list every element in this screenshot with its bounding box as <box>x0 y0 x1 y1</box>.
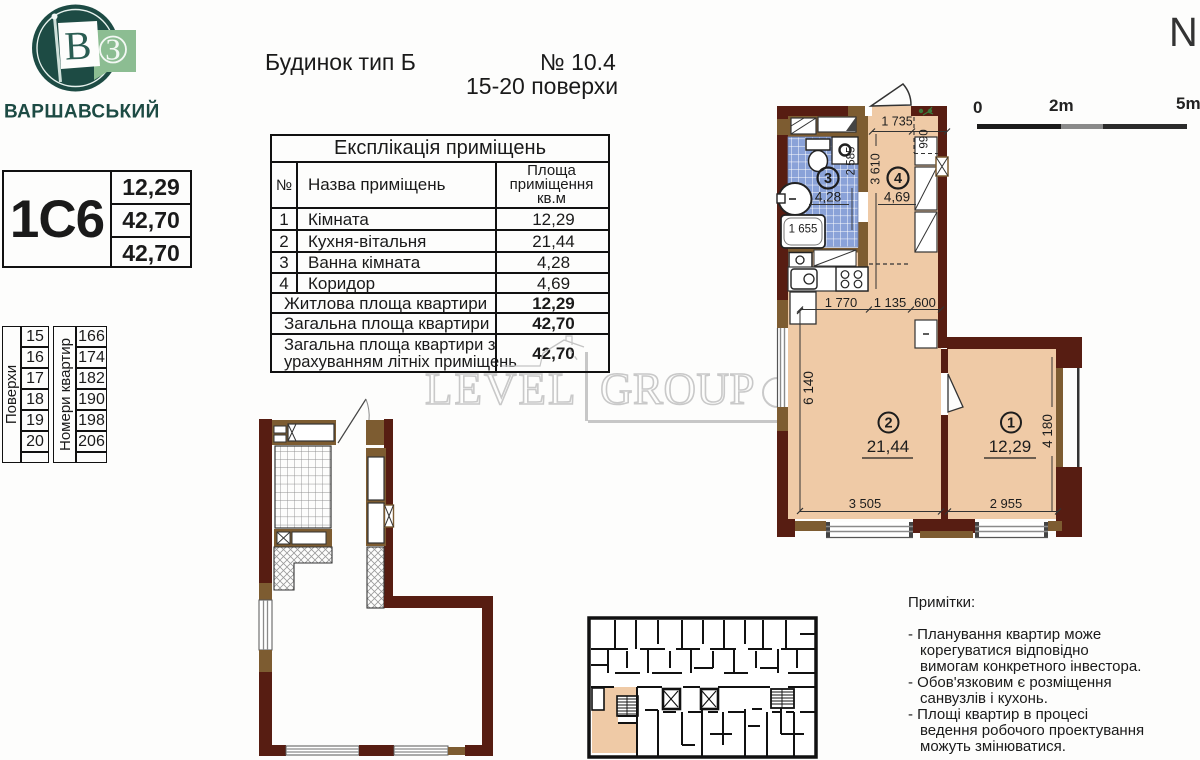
svg-text:3 610: 3 610 <box>869 153 883 184</box>
svg-text:1 770: 1 770 <box>825 295 858 310</box>
svg-text:4,28: 4,28 <box>815 190 841 205</box>
svg-text:2 955: 2 955 <box>990 496 1023 511</box>
svg-text:2: 2 <box>884 416 892 432</box>
svg-text:6 140: 6 140 <box>801 371 816 405</box>
svg-text:1 135: 1 135 <box>874 295 907 310</box>
svg-text:4 180: 4 180 <box>1040 414 1055 448</box>
svg-text:4: 4 <box>894 171 902 187</box>
svg-text:В: В <box>64 22 93 68</box>
svg-text:990: 990 <box>919 129 931 148</box>
svg-text:3: 3 <box>824 171 832 187</box>
svg-text:2 585: 2 585 <box>846 147 858 176</box>
svg-text:12,29: 12,29 <box>989 437 1032 456</box>
svg-text:21,44: 21,44 <box>867 437 910 456</box>
svg-text:4,69: 4,69 <box>884 190 910 205</box>
svg-text:1: 1 <box>1007 416 1015 432</box>
svg-text:600: 600 <box>914 295 936 310</box>
svg-text:1 735: 1 735 <box>881 115 912 129</box>
svg-text:ВАРШАВСЬКИЙ: ВАРШАВСЬКИЙ <box>4 101 160 123</box>
svg-text:3 505: 3 505 <box>849 496 882 511</box>
svg-text:З: З <box>105 32 121 67</box>
svg-text:1 655: 1 655 <box>789 224 818 236</box>
